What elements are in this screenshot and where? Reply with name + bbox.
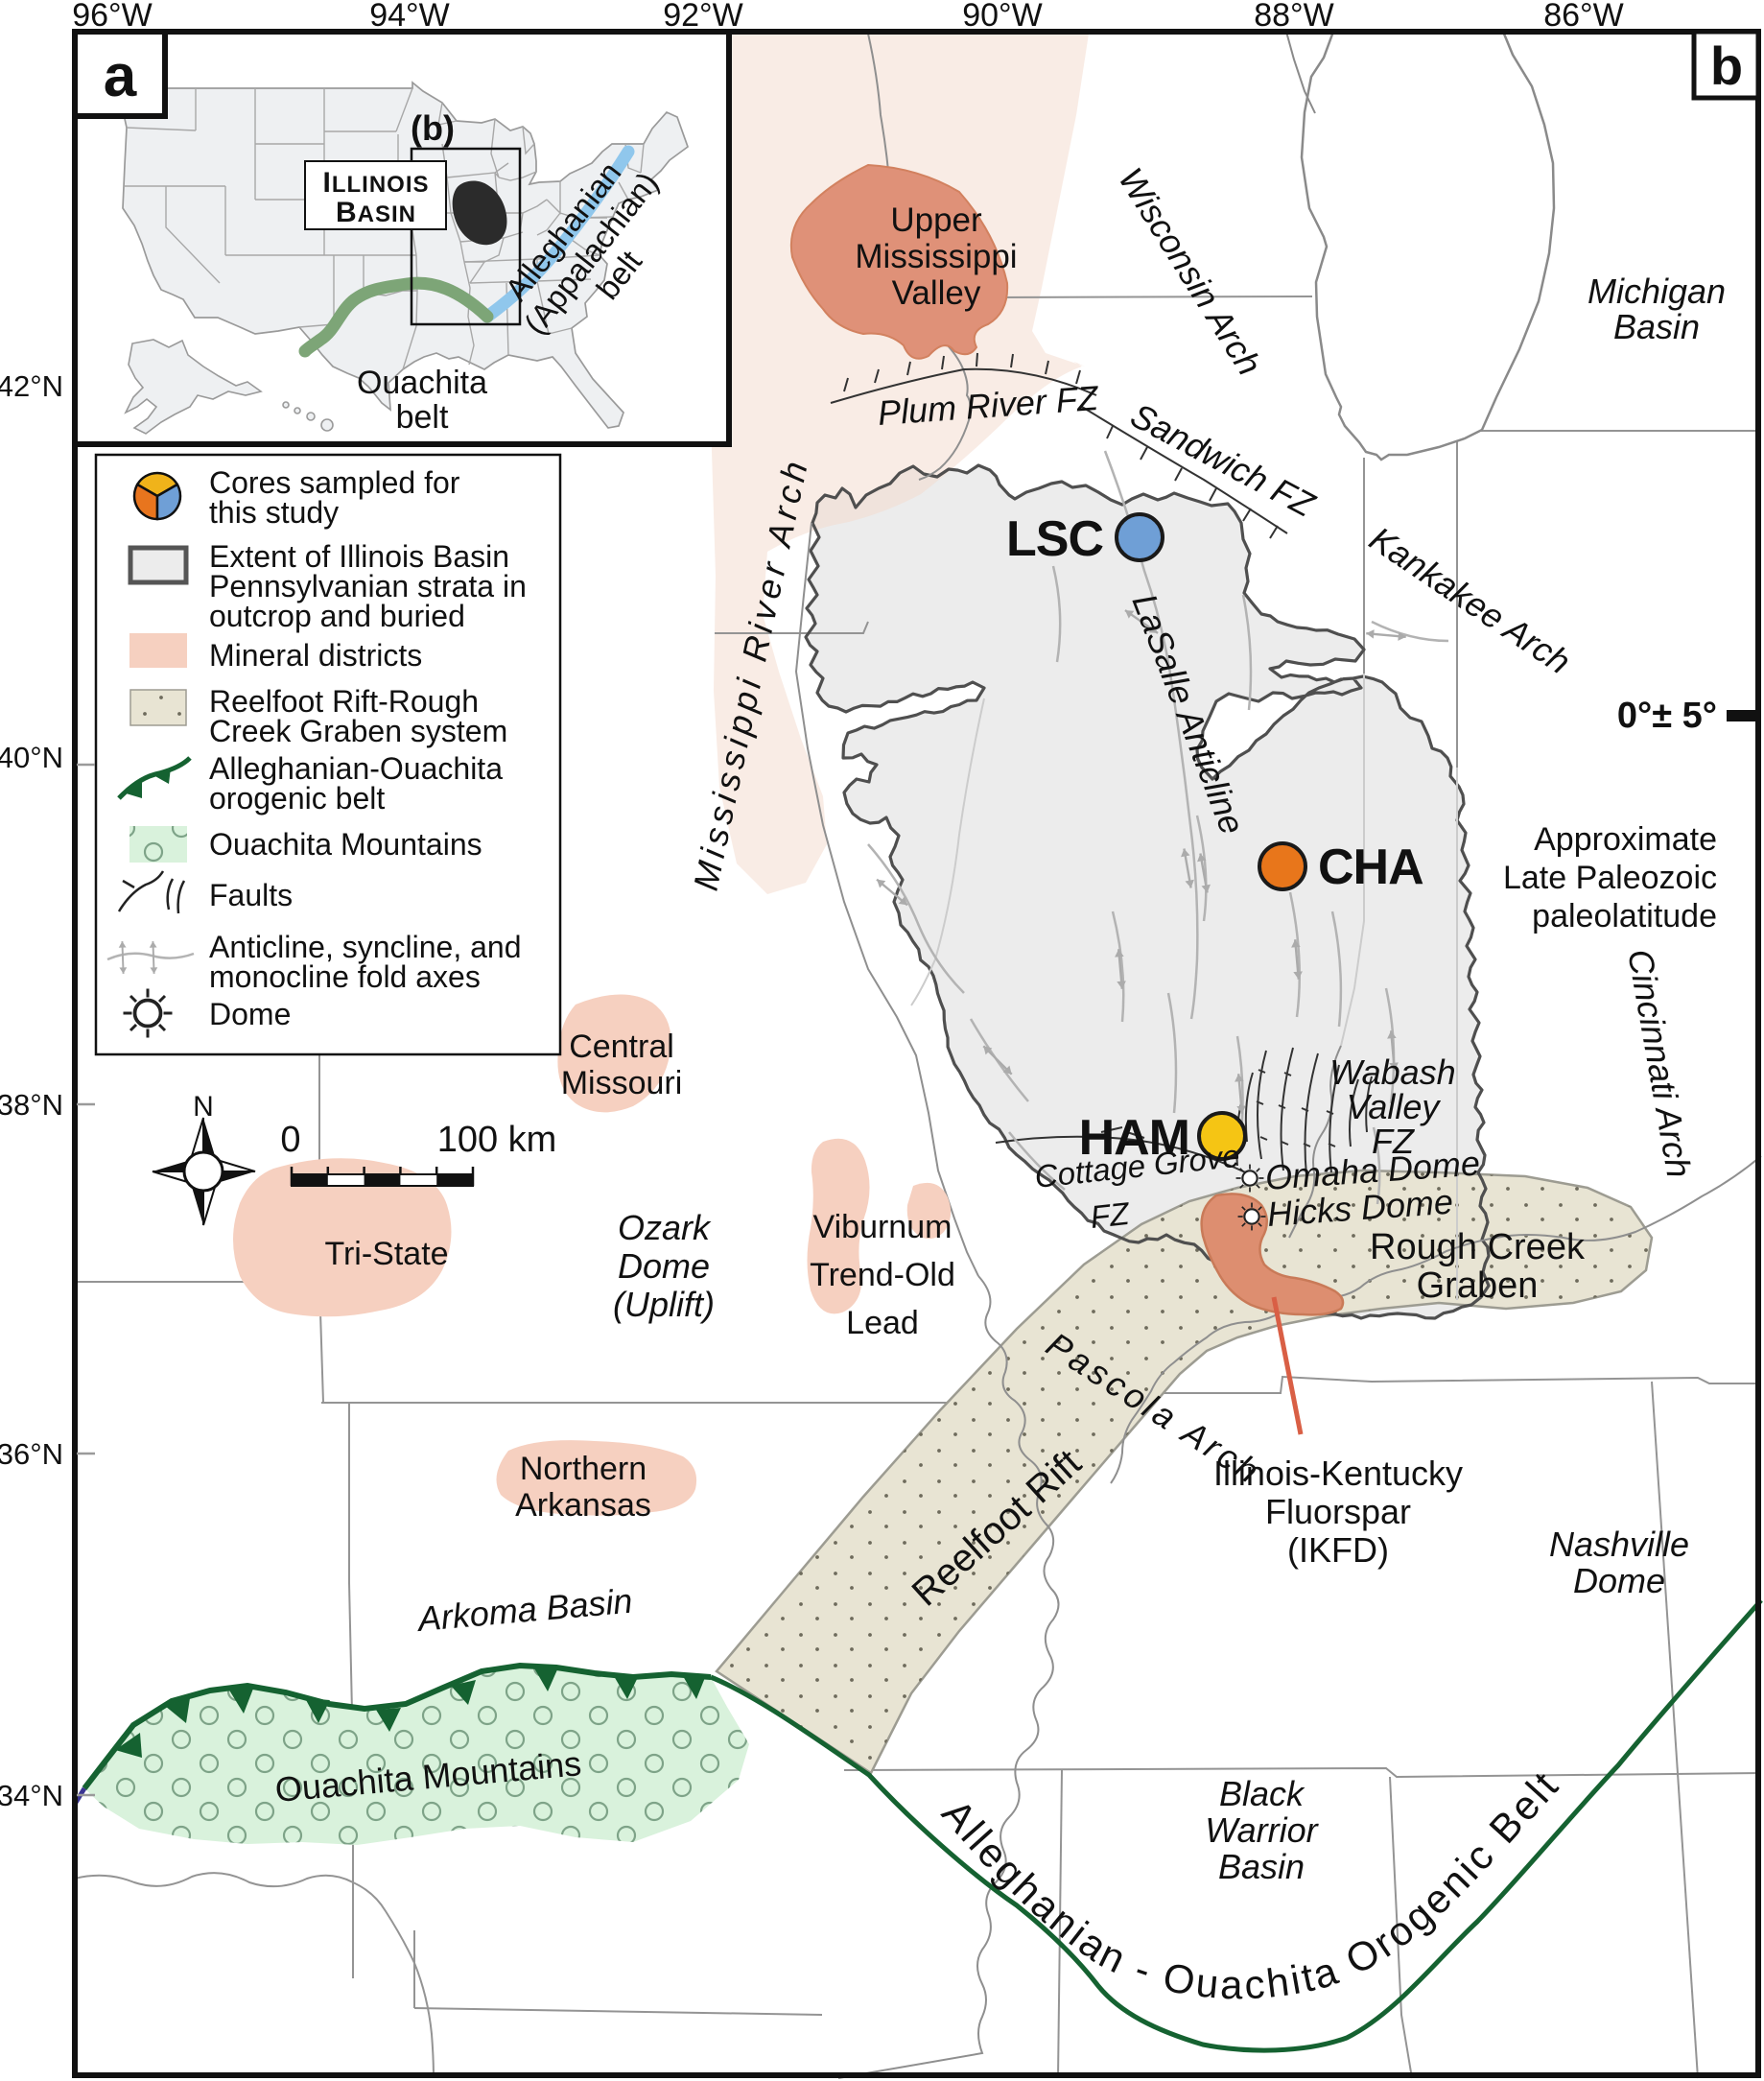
svg-text:96°W: 96°W — [72, 0, 153, 34]
svg-text:Valley: Valley — [892, 274, 981, 312]
svg-text:Michigan: Michigan — [1588, 272, 1726, 311]
svg-text:0: 0 — [280, 1120, 300, 1160]
svg-text:BASIN: BASIN — [336, 197, 416, 228]
svg-text:0°± 5°: 0°± 5° — [1617, 696, 1717, 736]
svg-text:Northern: Northern — [520, 1451, 647, 1487]
svg-text:36°N: 36°N — [0, 1437, 63, 1471]
svg-text:94°W: 94°W — [369, 0, 450, 34]
svg-text:88°W: 88°W — [1254, 0, 1334, 34]
svg-text:Warrior: Warrior — [1205, 1810, 1319, 1850]
svg-text:Mineral districts: Mineral districts — [209, 638, 422, 673]
svg-text:Dome: Dome — [209, 997, 291, 1031]
svg-text:Central: Central — [569, 1029, 674, 1065]
svg-text:Black: Black — [1219, 1774, 1305, 1813]
svg-text:38°N: 38°N — [0, 1088, 63, 1122]
svg-text:Dome: Dome — [618, 1246, 710, 1286]
svg-text:Viburnum: Viburnum — [813, 1209, 953, 1245]
svg-text:Ouachita: Ouachita — [357, 365, 487, 401]
svg-text:Faults: Faults — [209, 878, 293, 912]
svg-text:(b): (b) — [411, 108, 455, 148]
svg-text:Upper: Upper — [890, 201, 982, 239]
svg-text:34°N: 34°N — [0, 1779, 63, 1812]
svg-text:b: b — [1710, 35, 1743, 96]
svg-text:100 km: 100 km — [437, 1120, 557, 1160]
svg-text:40°N: 40°N — [0, 741, 63, 774]
svg-text:Basin: Basin — [1218, 1847, 1305, 1886]
svg-text:this study: this study — [209, 495, 339, 530]
svg-text:92°W: 92°W — [663, 0, 743, 34]
svg-text:FZ: FZ — [1089, 1195, 1133, 1235]
svg-text:Missouri: Missouri — [561, 1065, 683, 1101]
svg-text:Trend-Old: Trend-Old — [810, 1257, 955, 1293]
svg-text:Late Paleozoic: Late Paleozoic — [1503, 860, 1717, 896]
svg-text:Illinois-Kentucky: Illinois-Kentucky — [1213, 1454, 1463, 1493]
svg-text:Approximate: Approximate — [1534, 821, 1717, 858]
svg-text:Basin: Basin — [1613, 307, 1700, 346]
svg-text:Mississippi: Mississippi — [855, 238, 1017, 275]
svg-text:42°N: 42°N — [0, 369, 63, 403]
svg-text:Creek Graben system: Creek Graben system — [209, 714, 507, 748]
svg-text:LSC: LSC — [1006, 511, 1103, 567]
svg-text:outcrop and buried: outcrop and buried — [209, 599, 465, 633]
svg-text:(Uplift): (Uplift) — [613, 1285, 715, 1324]
svg-text:Tri-State: Tri-State — [324, 1236, 448, 1272]
svg-text:Lead: Lead — [846, 1305, 919, 1341]
svg-text:Ouachita Mountains: Ouachita Mountains — [209, 827, 482, 862]
svg-text:Nashville: Nashville — [1549, 1525, 1689, 1564]
svg-text:Wabash: Wabash — [1329, 1052, 1455, 1092]
svg-text:Arkansas: Arkansas — [515, 1487, 651, 1524]
svg-text:Graben: Graben — [1417, 1265, 1539, 1306]
svg-text:a: a — [104, 43, 137, 109]
svg-text:belt: belt — [396, 399, 449, 436]
svg-text:monocline fold axes: monocline fold axes — [209, 959, 481, 994]
svg-text:86°W: 86°W — [1543, 0, 1624, 34]
svg-text:CHA: CHA — [1318, 839, 1423, 895]
svg-text:Dome: Dome — [1573, 1561, 1665, 1600]
svg-text:Fluorspar: Fluorspar — [1265, 1492, 1411, 1531]
svg-text:(IKFD): (IKFD) — [1287, 1530, 1389, 1570]
svg-text:Rough Creek: Rough Creek — [1370, 1227, 1586, 1267]
svg-text:Valley: Valley — [1347, 1087, 1442, 1126]
svg-text:orogenic belt: orogenic belt — [209, 781, 385, 816]
svg-text:ILLINOIS: ILLINOIS — [322, 167, 429, 199]
svg-text:Ozark: Ozark — [618, 1208, 712, 1247]
svg-text:90°W: 90°W — [962, 0, 1043, 34]
svg-text:paleolatitude: paleolatitude — [1532, 898, 1717, 934]
